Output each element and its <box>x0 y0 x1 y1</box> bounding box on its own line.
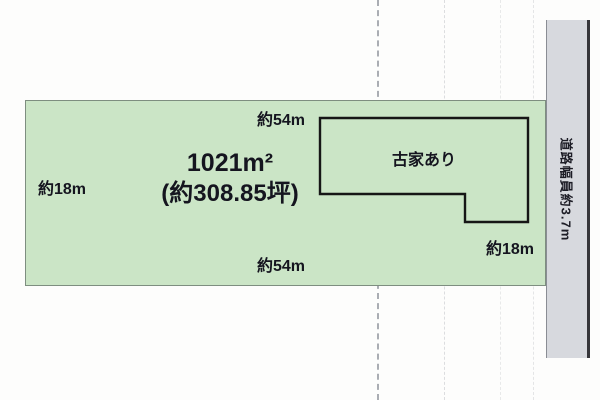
plot-area-tsubo-label: (約308.85坪) <box>120 179 340 209</box>
land-plot-diagram: 道路幅員約3.7m 約54m 約18m 1021m² (約308.85坪) 古家… <box>0 0 600 400</box>
right-depth-label: 約18m <box>486 241 534 259</box>
bottom-width-label: 約54m <box>257 258 305 276</box>
house-label: 古家あり <box>320 146 528 170</box>
road-width-label: 道路幅員約3.7m <box>558 137 577 241</box>
left-depth-label: 約18m <box>38 181 86 199</box>
plot-area-text: 1021m² (約308.85坪) <box>120 148 340 209</box>
top-width-label: 約54m <box>257 112 305 130</box>
road-strip: 道路幅員約3.7m <box>546 20 590 358</box>
plot-area-m2-label: 1021m² <box>120 148 340 179</box>
